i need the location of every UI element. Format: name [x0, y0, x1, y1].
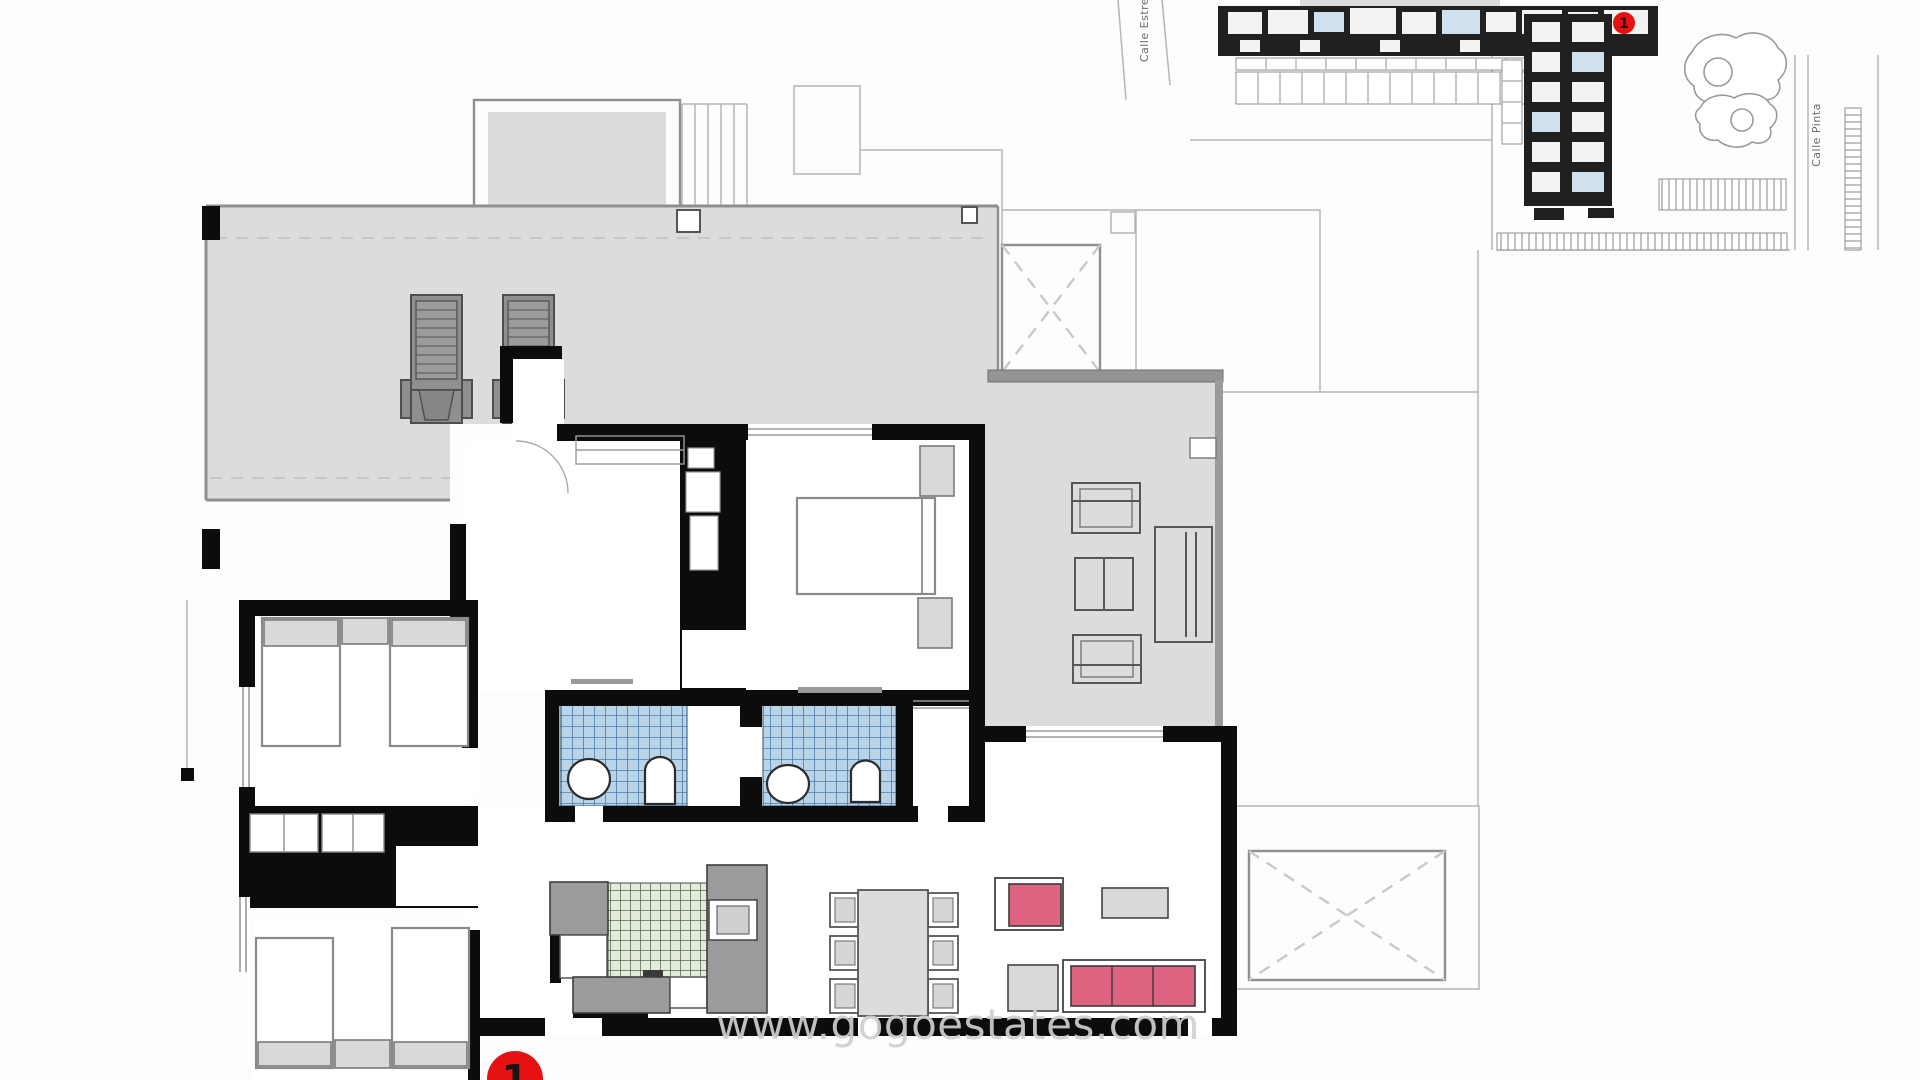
stairs	[682, 104, 747, 206]
closets	[250, 814, 384, 852]
site-plan: 1 Calle Estre Calle Pinta	[1118, 0, 1878, 250]
site-hatch-strip	[1497, 233, 1787, 250]
site-plan-unit-marker: 1	[1613, 12, 1635, 34]
street-label-right: Calle Pinta	[1810, 103, 1823, 167]
site-marker-label: 1	[1619, 16, 1629, 32]
dining-table	[830, 890, 958, 1016]
site-hatch-strip	[1659, 179, 1786, 210]
kitchen-tiles	[608, 883, 708, 977]
site-hatch-strip	[1845, 108, 1861, 250]
site-garden	[1685, 33, 1787, 147]
living-armchair-pink	[995, 878, 1063, 930]
unit-number-label: 1	[502, 1057, 528, 1080]
void-box-bottom-right	[1234, 806, 1479, 989]
sun-lounger	[401, 295, 472, 423]
floor-plan-drawing: 1 Calle Estre Calle Pinta	[0, 0, 1920, 1080]
floor-plan-page: 1 Calle Estre Calle Pinta www.gogoestate…	[0, 0, 1920, 1080]
street-label-left: Calle Estre	[1138, 0, 1151, 62]
skylight-area	[1002, 210, 1320, 392]
watermark: www.gogoestates.com	[716, 1000, 1200, 1049]
roof-bump	[474, 100, 680, 208]
living-side-table	[1102, 888, 1168, 918]
